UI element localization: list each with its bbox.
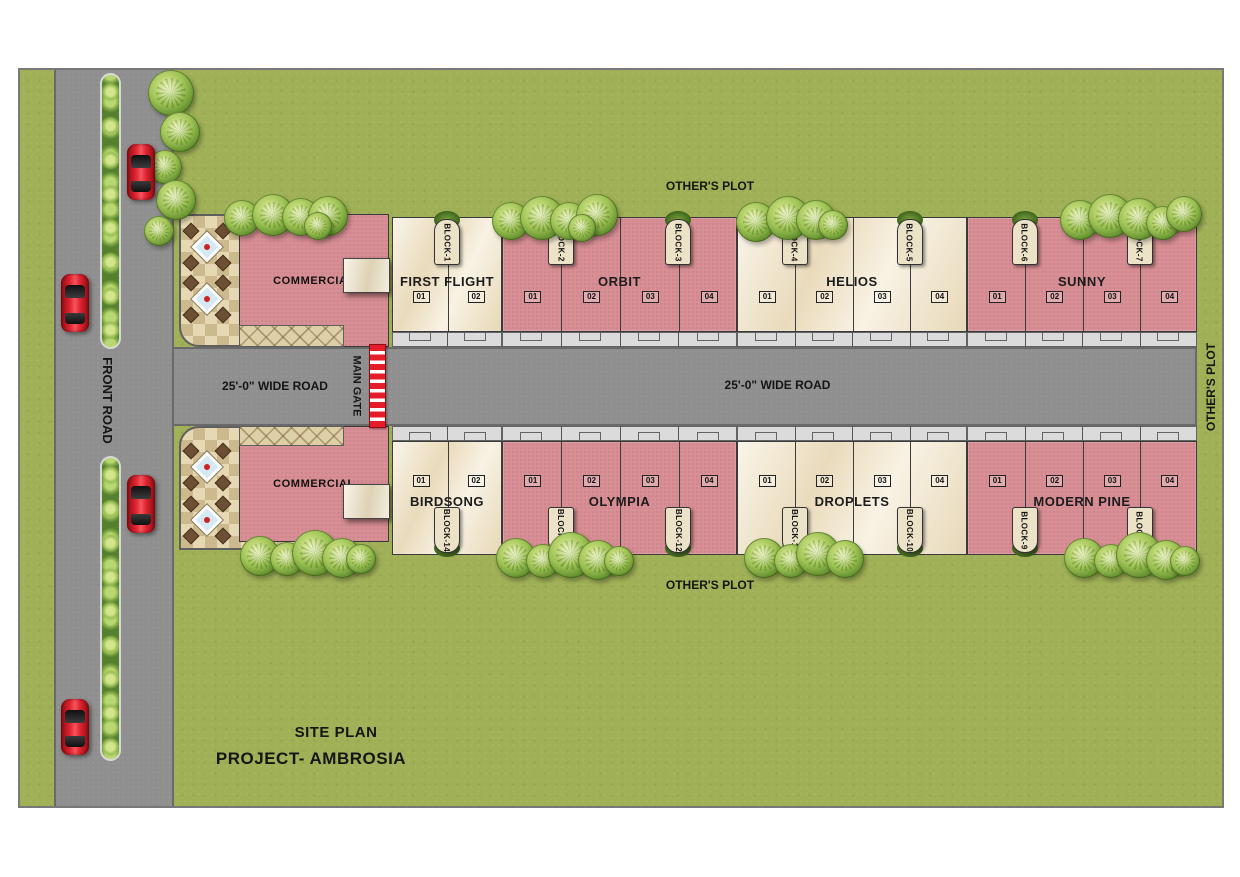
unit-number: 02 [1046,475,1063,487]
road-median-planting [102,458,119,759]
sidewalk-divider [1025,426,1026,441]
sidewalk-divider [852,332,853,347]
chair-icon [215,443,232,460]
unit-number: 03 [642,475,659,487]
sidewalk-divider [1140,332,1141,347]
sidewalk-divider [910,426,911,441]
wide-road-label-center: 25'-0" WIDE ROAD [700,378,855,392]
block-name-label: ORBIT [503,274,736,289]
porch-step [520,332,542,341]
tree-icon [148,70,194,116]
sidewalk-divider [1140,426,1141,441]
chair-icon [183,275,200,292]
tree-icon [346,544,376,574]
sidewalk-divider [447,426,448,441]
block-olympia: OLYMPIA01020304 [502,441,737,555]
sidewalk-divider [620,426,621,441]
porch-step [985,432,1007,441]
car-icon [61,699,89,755]
unit-number: 01 [524,291,541,303]
porch-step [697,432,719,441]
site-plan-canvas: FRONT ROAD 25'-0" WIDE ROAD 25'-0" WIDE … [0,0,1240,877]
block-tag: BLOCK-6 [1012,219,1038,265]
site-plan-map: FRONT ROAD 25'-0" WIDE ROAD 25'-0" WIDE … [18,68,1224,808]
chair-icon [183,475,200,492]
sidewalk-divider [561,332,562,347]
site-plan-title: SITE PLAN [256,724,416,741]
sidewalk-divider [561,426,562,441]
main-gate [369,344,386,428]
block-name-label: HELIOS [738,274,966,289]
road-median-planting [102,75,119,347]
porch-step [409,432,431,441]
porch-step [755,332,777,341]
chair-icon [215,307,232,324]
tree-icon [160,112,200,152]
unit-number: 04 [931,475,948,487]
porch-step [1100,432,1122,441]
sidewalk-divider [852,426,853,441]
unit-number: 01 [759,291,776,303]
unit-number: 02 [468,291,485,303]
unit-number: 03 [642,291,659,303]
unit-number: 02 [816,291,833,303]
block-tag: BLOCK-14 [434,507,460,553]
unit-number: 01 [989,475,1006,487]
block-tag: BLOCK-12 [665,507,691,553]
porch-step [985,332,1007,341]
sidewalk-divider [678,426,679,441]
block-name-label: MODERN PINE [968,494,1196,509]
tree-icon [826,540,864,578]
main-gate-label: MAIN GATE [344,346,368,426]
commercial-forecourt-bottom [239,426,344,446]
chair-icon [215,496,232,513]
porch-step [1042,432,1064,441]
outdoor-table-set [185,225,229,269]
chair-icon [215,528,232,545]
unit-number: 02 [468,475,485,487]
unit-number: 04 [701,291,718,303]
porch-step [755,432,777,441]
tree-icon [604,546,634,576]
porch-step [1100,332,1122,341]
unit-number: 02 [816,475,833,487]
tree-icon [156,180,196,220]
chair-icon [215,475,232,492]
wide-road-label-left: 25'-0" WIDE ROAD [200,379,350,393]
chair-icon [183,307,200,324]
unit-number: 02 [583,291,600,303]
others-plot-label-right: OTHER'S PLOT [1197,338,1224,436]
unit-number: 01 [524,475,541,487]
block-tag: BLOCK-9 [1012,507,1038,553]
unit-number: 03 [1104,475,1121,487]
chair-icon [215,275,232,292]
tree-icon [1166,196,1202,232]
chair-icon [183,528,200,545]
sidewalk-divider [795,426,796,441]
chair-icon [215,255,232,272]
sidewalk-divider [678,332,679,347]
block-name-label: OLYMPIA [503,494,736,509]
porch-step [1157,432,1179,441]
porch-step [579,432,601,441]
chair-icon [183,496,200,513]
porch-step [638,432,660,441]
block-tag: BLOCK-5 [897,219,923,265]
porch-step [812,432,834,441]
unit-number: 02 [583,475,600,487]
chair-icon [183,223,200,240]
front-road-label: FRONT ROAD [92,353,122,447]
outdoor-table-set [185,445,229,489]
chair-icon [183,255,200,272]
porch-step [697,332,719,341]
commercial-building-top [343,258,390,293]
unit-number: 01 [989,291,1006,303]
block-tag: BLOCK-3 [665,219,691,265]
sidewalk-divider [1082,426,1083,441]
unit-number: 03 [874,291,891,303]
sidewalk-divider [620,332,621,347]
porch-step [1042,332,1064,341]
block-name-label: DROPLETS [738,494,966,509]
tree-icon [144,216,174,246]
block-name-label: FIRST FLIGHT [393,274,501,289]
unit-number: 04 [1161,475,1178,487]
porch-step [927,432,949,441]
block-name-label: SUNNY [968,274,1196,289]
unit-number: 04 [931,291,948,303]
commercial-building-bottom [343,484,390,519]
car-icon [127,144,155,200]
porch-step [870,432,892,441]
tree-icon [304,212,332,240]
sidewalk-divider [910,332,911,347]
chair-icon [183,443,200,460]
outdoor-table-set [185,277,229,321]
porch-step [464,432,486,441]
porch-step [638,332,660,341]
sidewalk-divider [1025,332,1026,347]
unit-number: 03 [1104,291,1121,303]
porch-step [812,332,834,341]
tree-icon [568,214,596,242]
unit-number: 01 [413,475,430,487]
others-plot-label-bottom: OTHER'S PLOT [620,578,800,592]
block-tag: BLOCK-10 [897,507,923,553]
porch-step [1157,332,1179,341]
sidewalk-divider [795,332,796,347]
porch-step [579,332,601,341]
unit-number: 01 [759,475,776,487]
porch-step [927,332,949,341]
tree-icon [1170,546,1200,576]
unit-number: 01 [413,291,430,303]
sidewalk-divider [447,332,448,347]
porch-step [870,332,892,341]
porch-step [464,332,486,341]
unit-number: 02 [1046,291,1063,303]
others-plot-label-top: OTHER'S PLOT [620,179,800,193]
porch-step [409,332,431,341]
car-icon [61,274,89,332]
sidewalk-divider [1082,332,1083,347]
block-droplets: DROPLETS01020304 [737,441,967,555]
tree-icon [818,210,848,240]
unit-number: 03 [874,475,891,487]
block-tag: BLOCK-1 [434,219,460,265]
unit-number: 04 [701,475,718,487]
unit-number: 04 [1161,291,1178,303]
project-title: PROJECT- AMBROSIA [171,749,451,769]
porch-step [520,432,542,441]
commercial-forecourt-top [239,325,344,347]
car-icon [127,475,155,533]
outdoor-table-set [185,498,229,542]
